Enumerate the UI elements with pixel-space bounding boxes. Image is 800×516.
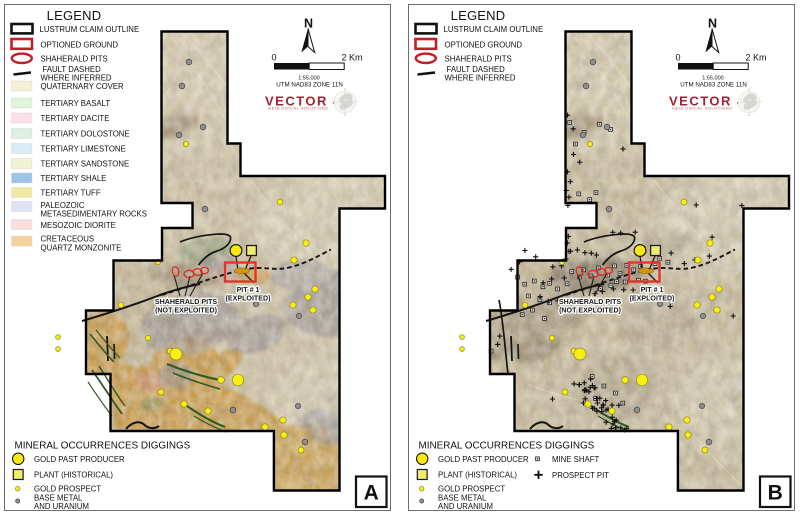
svg-text:SHAHERALD PITS: SHAHERALD PITS: [154, 298, 217, 306]
svg-text:GOLD PAST PRODUCER: GOLD PAST PRODUCER: [34, 455, 125, 464]
svg-text:MINERAL OCCURRENCES DIGGINGS: MINERAL OCCURRENCES DIGGINGS: [418, 440, 594, 451]
svg-text:METASEDIMENTARY ROCKS: METASEDIMENTARY ROCKS: [40, 209, 146, 218]
svg-text:GEOLOGICAL SOLUTIONS: GEOLOGICAL SOLUTIONS: [672, 105, 732, 110]
svg-text:TERTIARY DOLOSTONE: TERTIARY DOLOSTONE: [40, 129, 129, 138]
svg-text:LEGEND: LEGEND: [450, 8, 505, 23]
svg-text:PROSPECT PIT: PROSPECT PIT: [552, 471, 609, 480]
svg-text:AND URANIUM: AND URANIUM: [438, 501, 493, 510]
svg-text:QUARTZ MONZONITE: QUARTZ MONZONITE: [40, 243, 121, 252]
svg-text:B: B: [767, 481, 782, 504]
svg-text:PLANT (HISTORICAL): PLANT (HISTORICAL): [34, 470, 113, 479]
svg-text:WHERE INFERRED: WHERE INFERRED: [40, 73, 111, 82]
svg-text:2 Km: 2 Km: [341, 52, 362, 62]
svg-text:OPTIONED GROUND: OPTIONED GROUND: [444, 40, 522, 49]
svg-text:A: A: [363, 481, 378, 504]
svg-text:TERTIARY DACITE: TERTIARY DACITE: [40, 114, 109, 123]
svg-text:(NOT EXPLOITED): (NOT EXPLOITED): [559, 306, 622, 314]
svg-text:PIT # 1: PIT # 1: [236, 286, 259, 294]
svg-text:0: 0: [675, 52, 680, 62]
svg-text:MINE SHAFT: MINE SHAFT: [552, 455, 599, 464]
svg-text:SHAHERALD PITS: SHAHERALD PITS: [558, 298, 621, 306]
svg-text:AND URANIUM: AND URANIUM: [34, 501, 89, 510]
svg-text:MINERAL OCCURRENCES DIGGINGS: MINERAL OCCURRENCES DIGGINGS: [14, 440, 190, 451]
svg-text:TERTIARY SANDSTONE: TERTIARY SANDSTONE: [40, 159, 129, 168]
svg-text:UTM NAD83 ZONE 11N: UTM NAD83 ZONE 11N: [680, 81, 747, 88]
svg-text:LUSTRUM CLAIM OUTLINE: LUSTRUM CLAIM OUTLINE: [39, 24, 139, 33]
svg-text:SHAHERALD PITS: SHAHERALD PITS: [40, 54, 107, 63]
svg-text:(EXPLOITED): (EXPLOITED): [225, 294, 271, 302]
svg-text:SHAHERALD PITS: SHAHERALD PITS: [444, 54, 511, 63]
svg-text:TERTIARY LIMESTONE: TERTIARY LIMESTONE: [40, 144, 125, 153]
svg-text:LUSTRUM CLAIM OUTLINE: LUSTRUM CLAIM OUTLINE: [443, 24, 543, 33]
svg-text:GEOLOGICAL SOLUTIONS: GEOLOGICAL SOLUTIONS: [268, 105, 328, 110]
svg-text:0: 0: [271, 52, 276, 62]
svg-text:TERTIARY SHALE: TERTIARY SHALE: [40, 174, 106, 183]
svg-text:WHERE INFERRED: WHERE INFERRED: [444, 73, 515, 82]
svg-text:MESOZOIC DIORITE: MESOZOIC DIORITE: [40, 221, 115, 230]
svg-text:QUATERNARY COVER: QUATERNARY COVER: [40, 82, 124, 91]
svg-text:N: N: [707, 16, 716, 30]
svg-text:PIT # 1: PIT # 1: [640, 286, 663, 294]
svg-text:(EXPLOITED): (EXPLOITED): [629, 294, 675, 302]
svg-text:(NOT EXPLOITED): (NOT EXPLOITED): [155, 306, 218, 314]
svg-text:N: N: [303, 16, 312, 30]
svg-text:PLANT (HISTORICAL): PLANT (HISTORICAL): [438, 470, 517, 479]
svg-text:LEGEND: LEGEND: [46, 8, 101, 23]
svg-text:TERTIARY BASALT: TERTIARY BASALT: [40, 99, 110, 108]
svg-text:TERTIARY TUFF: TERTIARY TUFF: [40, 188, 100, 197]
svg-text:2 Km: 2 Km: [745, 52, 766, 62]
svg-text:OPTIONED GROUND: OPTIONED GROUND: [40, 40, 118, 49]
svg-text:GOLD PAST PRODUCER: GOLD PAST PRODUCER: [438, 455, 529, 464]
svg-text:PALEOZOIC: PALEOZOIC: [40, 200, 84, 209]
svg-text:CRETACEOUS: CRETACEOUS: [40, 234, 94, 243]
svg-text:UTM NAD83 ZONE 11N: UTM NAD83 ZONE 11N: [276, 81, 343, 88]
